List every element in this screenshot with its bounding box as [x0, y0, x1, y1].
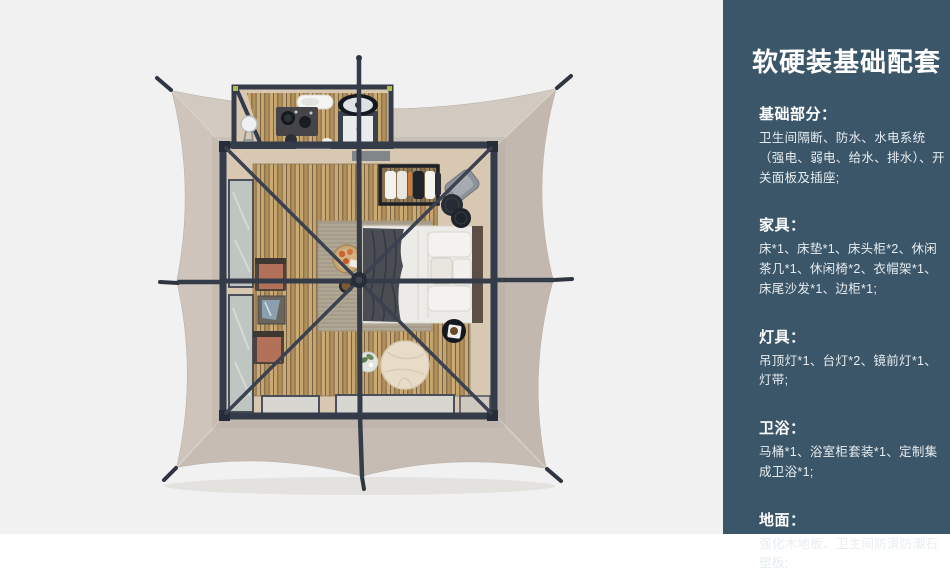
stake-right-icon: [554, 279, 572, 280]
section-bathroom: 卫浴： 马桶*1、浴室柜套装*1、定制集成卫浴*1;: [759, 417, 948, 483]
sidebar-title: 软硬装基础配套: [740, 42, 950, 79]
garment-orange: [408, 172, 412, 196]
pillow-large-bottom: [428, 286, 471, 311]
window-bottom-left: [262, 396, 319, 415]
mirror-table: [258, 296, 285, 324]
section-flooring: 地面： 强化木地板、卫生间防滑防潮石塑板;: [759, 509, 948, 574]
page: 软硬装基础配套 基础部分： 卫生间隔断、防水、水电系统（强电、弱电、给水、排水）…: [0, 0, 950, 534]
section-furniture-body: 床*1、床垫*1、床头柜*2、休闲茶几*1、休闲椅*2、衣帽架*1、床尾沙发*1…: [759, 240, 948, 299]
section-basics: 基础部分： 卫生间隔断、防水、水电系统（强电、弱电、给水、排水）、开关面板及插座…: [759, 103, 948, 188]
spec-sidebar: 软硬装基础配套 基础部分： 卫生间隔断、防水、水电系统（强电、弱电、给水、排水）…: [723, 0, 950, 534]
pouf: [381, 341, 429, 389]
side-table: [442, 319, 466, 343]
pole-top-cap: [356, 55, 362, 61]
section-bathroom-body: 马桶*1、浴室柜套装*1、定制集成卫浴*1;: [759, 443, 948, 483]
garment-black: [413, 171, 424, 199]
window-bottom-mid: [336, 395, 454, 415]
section-flooring-title: 地面：: [759, 509, 948, 530]
section-lighting-title: 灯具：: [759, 326, 948, 347]
ground-shadow: [165, 477, 555, 495]
fruit-3: [343, 258, 349, 264]
pole-bottom-ext: [360, 416, 362, 476]
fruit-2: [347, 249, 353, 255]
floorplan-render: [0, 0, 723, 534]
corner-cap-right: [387, 86, 392, 91]
section-lighting: 灯具： 吊顶灯*1、台灯*2、镜前灯*1、灯带;: [759, 326, 948, 392]
section-basics-body: 卫生间隔断、防水、水电系统（强电、弱电、给水、排水）、开关面板及插座;: [759, 129, 948, 188]
garment-white-1: [385, 171, 396, 199]
armchair-1: [255, 258, 286, 291]
garment-white-3: [425, 171, 435, 199]
section-furniture: 家具： 床*1、床垫*1、床头柜*2、休闲茶几*1、休闲椅*2、衣帽架*1、床尾…: [759, 214, 948, 299]
section-flooring-body: 强化木地板、卫生间防滑防潮石塑板;: [759, 535, 948, 574]
center-hub: [351, 272, 367, 288]
fruit-1: [339, 251, 345, 257]
toilet: [297, 95, 333, 109]
pillow-large-top: [428, 232, 471, 257]
garment-white-2: [397, 171, 407, 199]
corner-cap-left: [233, 86, 238, 91]
stake-bottom-mid-icon: [362, 477, 364, 489]
section-bathroom-title: 卫浴：: [759, 417, 948, 438]
bed: [363, 226, 483, 323]
garment-bag: [435, 173, 441, 195]
wardrobe-rack: [380, 166, 441, 204]
stool-dark-2: [451, 208, 471, 228]
section-basics-title: 基础部分：: [759, 103, 948, 124]
headboard: [472, 226, 483, 323]
section-furniture-title: 家具：: [759, 214, 948, 235]
stake-left-icon: [160, 282, 178, 283]
section-lighting-body: 吊顶灯*1、台灯*2、镜前灯*1、灯带;: [759, 352, 948, 392]
